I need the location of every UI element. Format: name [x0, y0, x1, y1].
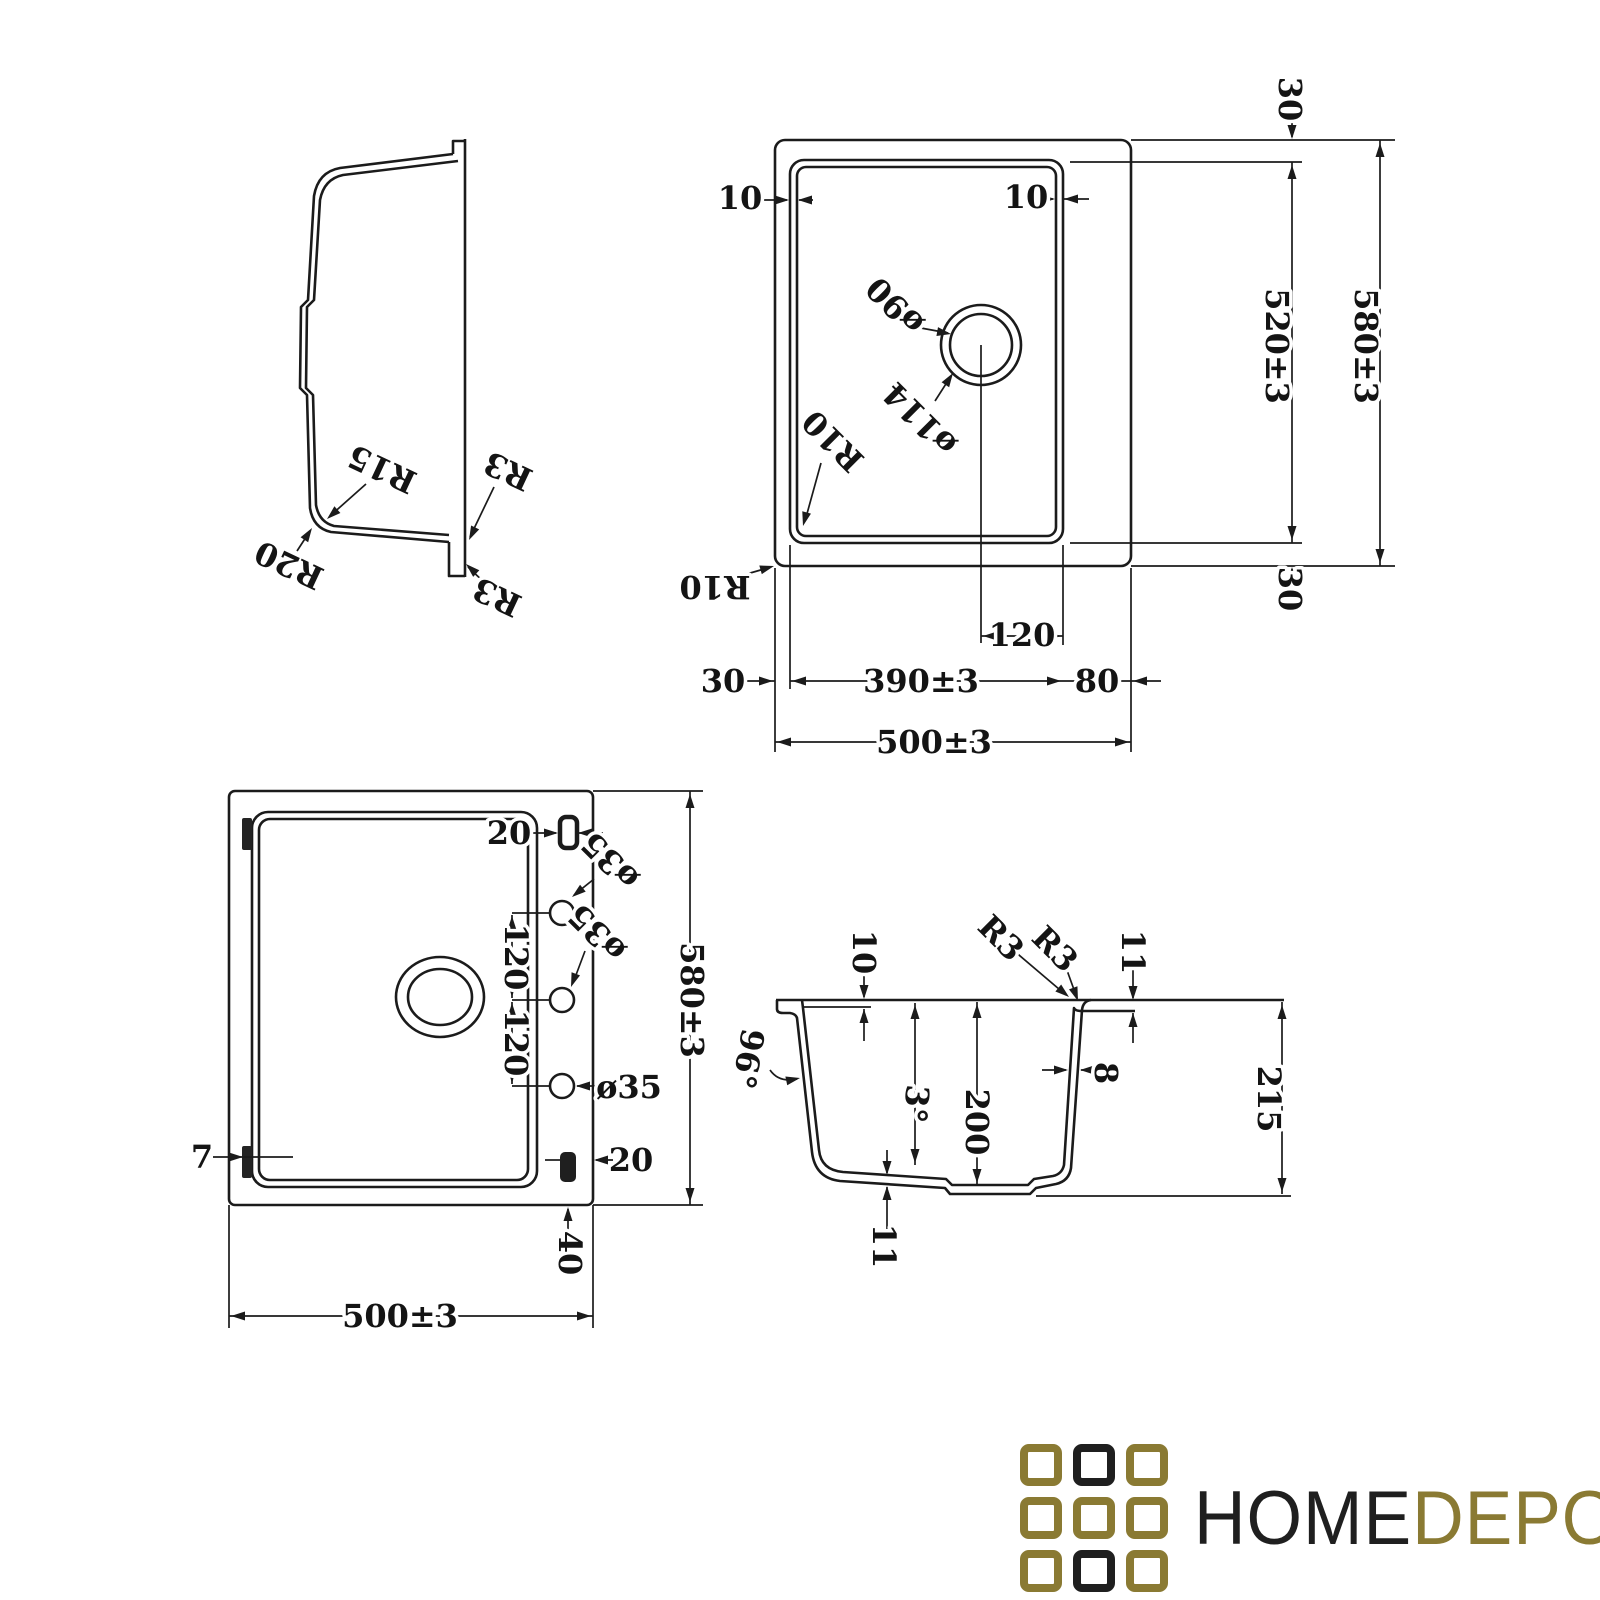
side-profile-view: R15 R20 R3 R3: [249, 139, 538, 625]
leader-r10-bowl: [805, 463, 821, 521]
dim-10-right: 10: [1004, 178, 1049, 216]
arrow: [973, 1004, 982, 1018]
dim-390: 390±3: [863, 662, 979, 700]
logo-grid-square: [1020, 1444, 1062, 1486]
tap-hole-bottom: [550, 1074, 574, 1098]
arrow: [911, 1149, 920, 1163]
dim-slot-offset-40: 40: [551, 1231, 589, 1276]
arrow: [759, 677, 773, 686]
dim-r3-top: R3: [478, 443, 538, 498]
plan-bowl-inner: [797, 167, 1056, 536]
dim-wall-8: 8: [1087, 1062, 1125, 1084]
arrow: [785, 1074, 801, 1086]
logo-grid-square: [1020, 1550, 1062, 1592]
arrow: [883, 1161, 892, 1175]
arrow: [777, 738, 791, 747]
clip-tab-top: [242, 818, 252, 850]
top-plan-view: 10 10 30 520±3 580±3 30 ø90 ø114 R10 R10…: [679, 77, 1395, 761]
side-top-flange: [453, 141, 465, 154]
arrow: [686, 794, 695, 808]
logo-grid-square: [1126, 1550, 1168, 1592]
dim-pitch-bottom-120: 120: [497, 1010, 535, 1077]
bottom-body-outer: [252, 812, 537, 1187]
arrow: [1047, 677, 1061, 686]
clip-slot-bottom: [560, 1152, 576, 1182]
dim-lip-10: 10: [845, 930, 883, 975]
arrow: [911, 1005, 920, 1019]
arrow: [567, 972, 580, 988]
dim-slot-bottom-20: 20: [609, 1141, 654, 1179]
arrow: [231, 1312, 245, 1321]
logo-grid-square: [1073, 1550, 1115, 1592]
arrow: [775, 196, 789, 205]
arrow: [229, 1153, 243, 1162]
dim-depth-200: 200: [958, 1089, 996, 1156]
dim-80: 80: [1075, 662, 1120, 700]
dim-30-left: 30: [701, 662, 746, 700]
arrow: [1115, 738, 1129, 747]
dim-500-bottomview: 500±3: [342, 1297, 458, 1335]
logo-grid-icon: [1020, 1444, 1168, 1592]
cross-section-view: 10 R3 R3 11 96° 3° 200 8 215 11: [724, 907, 1291, 1268]
plan-outer-rim: [775, 140, 1131, 566]
dim-draft-3: 3°: [895, 1083, 936, 1124]
arrow: [1055, 985, 1072, 1001]
dim-r20: R20: [249, 533, 330, 597]
dim-10-left: 10: [718, 179, 763, 217]
clip-tab-bottom: [242, 1146, 252, 1178]
arrow-r3-top: [465, 525, 479, 542]
arrow: [1129, 986, 1138, 1000]
logo-grid-square: [1073, 1497, 1115, 1539]
arrow: [1054, 1066, 1068, 1075]
dim-r3-bottom: R3: [467, 569, 527, 624]
dim-580: 580±3: [1347, 288, 1385, 404]
dim-angle-96: 96°: [724, 1026, 772, 1092]
technical-drawing-sheet: R15 R20 R3 R3: [0, 0, 1600, 1600]
arrow: [544, 829, 558, 838]
dim-120: 120: [989, 616, 1056, 654]
arrow: [1376, 549, 1385, 563]
arrow: [792, 677, 806, 686]
arrow: [1288, 526, 1297, 540]
arrow: [1376, 143, 1385, 157]
bottom-body-inner: [259, 819, 528, 1180]
dim-hole-bottom-35: ø35: [596, 1068, 662, 1106]
arrow: [942, 371, 957, 388]
dim-30-bottom: 30: [1271, 567, 1309, 612]
logo-text-depo: DEPO: [1412, 1476, 1600, 1561]
arrow: [860, 985, 869, 999]
dim-drain-90: ø90: [858, 269, 931, 342]
bottom-outer-rim: [229, 791, 593, 1205]
dim-slot-top-20: 20: [487, 814, 532, 852]
logo-text-home: HOME: [1194, 1476, 1412, 1561]
dim-drain-114: ø114: [875, 374, 964, 463]
arrow: [1288, 165, 1297, 179]
dim-520: 520±3: [1258, 288, 1296, 404]
dim-30-top: 30: [1271, 77, 1309, 122]
dim-r15: R15: [342, 437, 423, 501]
dim-height-215: 215: [1250, 1066, 1288, 1133]
dim-580-bottomview: 580±3: [673, 942, 711, 1058]
arrow: [759, 562, 775, 575]
dim-r3-right: R3: [1024, 918, 1085, 979]
arrow: [686, 1188, 695, 1202]
dim-r10-outer: R10: [679, 568, 750, 606]
arrow: [1133, 677, 1147, 686]
bottom-underside-view: 20 ø35 ø35 ø35 120 120 7 20 40 580±3 500…: [191, 791, 711, 1335]
dim-bottom-11: 11: [865, 1224, 903, 1269]
arrow: [1278, 1005, 1287, 1019]
arrow: [1288, 125, 1297, 139]
logo-grid-square: [1126, 1444, 1168, 1486]
arrow: [577, 1312, 591, 1321]
dim-500: 500±3: [876, 723, 992, 761]
dim-deck-11: 11: [1114, 930, 1152, 975]
side-bottom-flange: [449, 542, 465, 576]
arrow: [883, 1186, 892, 1200]
plan-bowl-outer: [790, 160, 1063, 543]
arrow: [1064, 195, 1078, 204]
dim-r3-left: R3: [970, 907, 1031, 968]
arrow: [973, 1169, 982, 1183]
logo-wordmark: HOMEDEPO: [1194, 1475, 1600, 1562]
arrow: [576, 1082, 590, 1091]
clip-slot-top: [560, 817, 577, 848]
logo-grid-square: [1020, 1497, 1062, 1539]
arrow: [594, 1156, 608, 1165]
dim-r10-bowl: R10: [794, 402, 871, 479]
arrow: [1278, 1178, 1287, 1192]
dim-tab-7: 7: [191, 1138, 213, 1176]
arrow: [798, 196, 812, 205]
tap-hole-mid: [550, 988, 574, 1012]
arrow: [564, 1207, 573, 1221]
arrow: [1129, 1013, 1138, 1027]
dim-pitch-top-120: 120: [497, 924, 535, 991]
homedepo-logo: HOMEDEPO: [1020, 1444, 1600, 1592]
drain-recess-inner: [408, 969, 472, 1025]
arrow: [860, 1009, 869, 1023]
logo-grid-square: [1073, 1444, 1115, 1486]
arrow-r20: [301, 526, 316, 543]
arrow: [799, 511, 811, 527]
logo-grid-square: [1126, 1497, 1168, 1539]
